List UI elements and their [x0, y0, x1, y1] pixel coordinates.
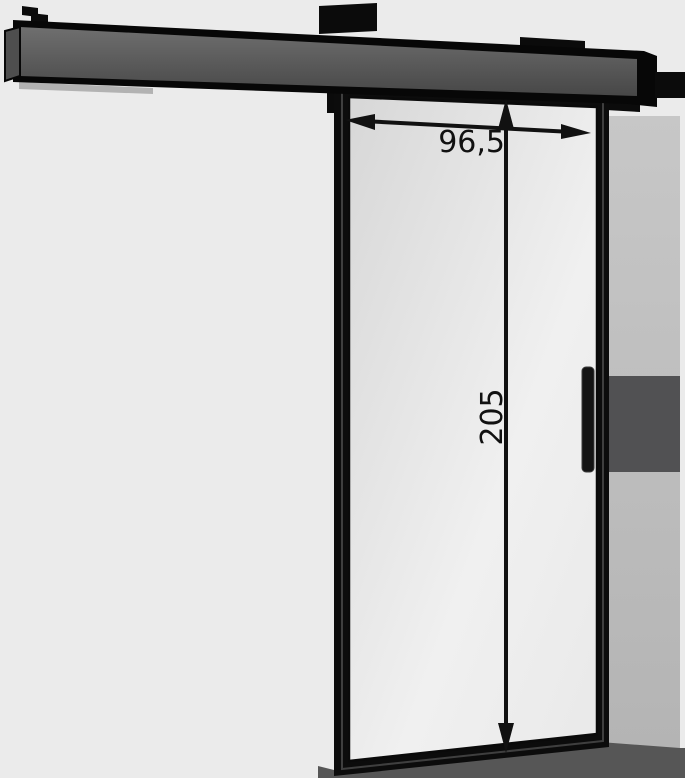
rail-right-extension: [655, 72, 685, 98]
door-handle: [582, 367, 594, 472]
diagram-svg: 96,5 205: [0, 0, 685, 778]
height-dimension-label: 205: [475, 388, 510, 445]
width-dimension-label: 96,5: [438, 125, 505, 160]
door-glass: [349, 97, 597, 761]
rail-left-end-cap: [5, 27, 20, 81]
wall-band-dark-block: [608, 376, 680, 472]
diagram-canvas: 96,5 205: [0, 0, 685, 778]
wall-opening-band: [608, 116, 680, 752]
bracket-tab-center: [319, 3, 377, 34]
